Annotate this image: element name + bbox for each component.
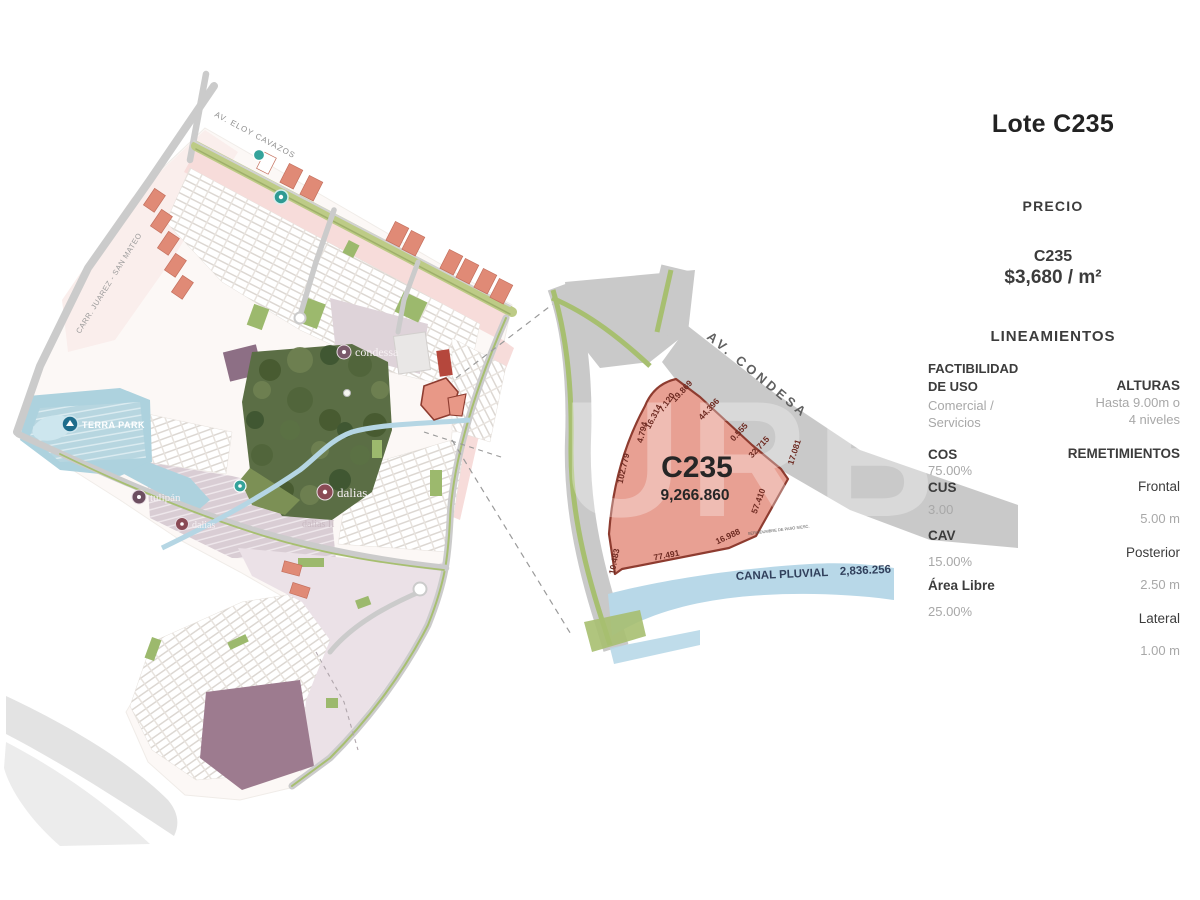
cos-value: 75.00% [928, 464, 1068, 479]
school-icon [254, 150, 265, 161]
posterior-value: 2.50 m [1010, 578, 1180, 593]
cav-label: CAV [928, 528, 1068, 544]
school-icon [274, 190, 288, 204]
building-gray-block [394, 332, 431, 374]
label-dalias-left: dalias [176, 518, 216, 532]
label-dalias: dalias [317, 484, 367, 500]
canal-value: 2,836.256 [840, 564, 892, 578]
roundabout [295, 313, 306, 324]
school-icon [234, 480, 246, 492]
factibilidad-label-1: FACTIBILIDAD [928, 362, 1068, 377]
detail-lot-area: 9,266.860 [661, 487, 730, 504]
slide: TERRA PARK condessa tulipán dalias dalia… [0, 0, 1200, 900]
forest-marker-icon [344, 390, 351, 397]
price-lot-id: C235 [920, 248, 1186, 266]
label-dalias2: dalias II [302, 519, 335, 530]
label-condessa: condessa [337, 345, 399, 359]
frontal-label: Frontal [1010, 479, 1180, 495]
svg-text:condessa: condessa [355, 345, 399, 359]
alturas-value-2: 4 niveles [1010, 413, 1180, 428]
posterior-label: Posterior [1010, 545, 1180, 561]
lateral-label: Lateral [1010, 611, 1180, 627]
alturas-label: ALTURAS [1010, 378, 1180, 394]
svg-text:dalias: dalias [192, 520, 215, 531]
frontal-value: 5.00 m [1010, 512, 1180, 527]
svg-text:tulipán: tulipán [150, 492, 181, 504]
roundabout [414, 583, 427, 596]
master-plan-map: TERRA PARK condessa tulipán dalias dalia… [4, 74, 514, 846]
remetimientos-label: REMETIMIENTOS [1010, 446, 1180, 462]
precio-heading: PRECIO [920, 198, 1186, 214]
alturas-value-1: Hasta 9.00m o [1010, 396, 1180, 411]
lateral-value: 1.00 m [1010, 644, 1180, 659]
svg-text:TERRA PARK: TERRA PARK [82, 420, 145, 430]
page-title: Lote C235 [920, 110, 1186, 139]
label-tulipan: tulipán [132, 490, 181, 504]
price-value: $3,680 / m² [920, 267, 1186, 289]
lineamientos-heading: LINEAMIENTOS [920, 328, 1186, 345]
detail-lot-id: C235 [661, 451, 733, 484]
svg-text:dalias: dalias [337, 485, 367, 500]
